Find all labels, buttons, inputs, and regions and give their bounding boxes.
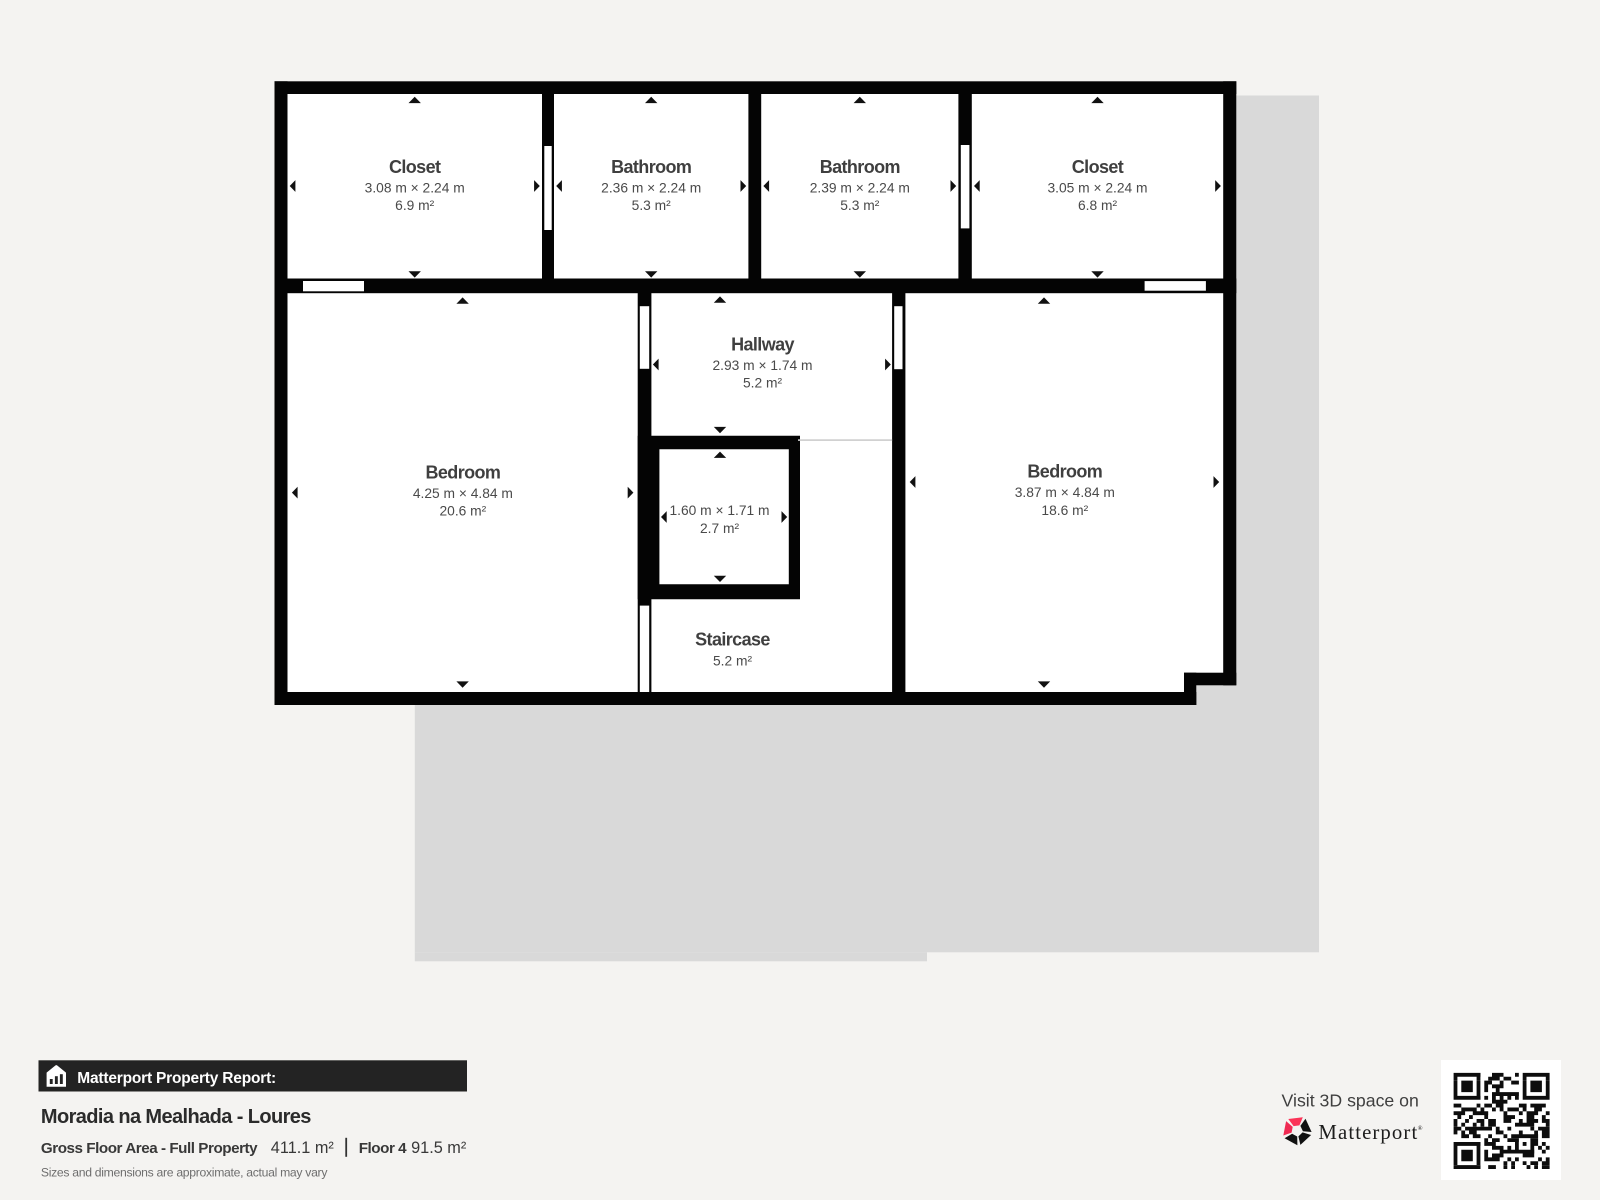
svg-text:91.5 m²: 91.5 m²: [411, 1139, 467, 1157]
svg-text:3.87 m × 4.84 m: 3.87 m × 4.84 m: [1015, 485, 1115, 500]
svg-text:6.8 m²: 6.8 m²: [1078, 198, 1118, 213]
svg-text:Bedroom: Bedroom: [425, 462, 500, 482]
svg-text:Moradia na Mealhada - Loures: Moradia na Mealhada - Loures: [41, 1106, 311, 1128]
svg-text:Bathroom: Bathroom: [611, 157, 691, 177]
svg-text:2.7 m²: 2.7 m²: [700, 521, 740, 536]
svg-text:Sizes and dimensions are appro: Sizes and dimensions are approximate, ac…: [41, 1165, 328, 1179]
svg-text:2.39 m × 2.24 m: 2.39 m × 2.24 m: [810, 180, 910, 195]
svg-text:2.36 m × 2.24 m: 2.36 m × 2.24 m: [601, 180, 701, 195]
svg-text:2.93 m × 1.74 m: 2.93 m × 1.74 m: [712, 358, 812, 373]
svg-text:Closet: Closet: [1072, 157, 1124, 177]
svg-text:Closet: Closet: [389, 157, 441, 177]
svg-text:5.2 m²: 5.2 m²: [743, 376, 783, 391]
svg-text:®: ®: [1418, 1125, 1423, 1132]
svg-text:4.25 m × 4.84 m: 4.25 m × 4.84 m: [413, 486, 513, 501]
svg-text:411.1 m²: 411.1 m²: [271, 1139, 335, 1157]
svg-text:5.3 m²: 5.3 m²: [840, 198, 880, 213]
svg-text:5.3 m²: 5.3 m²: [632, 198, 672, 213]
svg-text:1.60 m × 1.71 m: 1.60 m × 1.71 m: [669, 503, 769, 518]
svg-text:18.6 m²: 18.6 m²: [1041, 503, 1088, 518]
svg-text:Staircase: Staircase: [695, 629, 770, 649]
svg-text:Hallway: Hallway: [731, 334, 794, 354]
svg-text:Matterport Property Report:: Matterport Property Report:: [77, 1070, 276, 1087]
svg-text:Gross Floor Area - Full Proper: Gross Floor Area - Full Property: [41, 1140, 258, 1157]
svg-text:Matterport: Matterport: [1318, 1121, 1418, 1144]
svg-text:20.6 m²: 20.6 m²: [440, 504, 487, 519]
svg-text:Bathroom: Bathroom: [820, 157, 900, 177]
svg-text:6.9 m²: 6.9 m²: [395, 198, 435, 213]
svg-text:3.05 m × 2.24 m: 3.05 m × 2.24 m: [1047, 180, 1147, 195]
svg-text:Floor 4: Floor 4: [359, 1140, 407, 1157]
svg-text:3.08 m × 2.24 m: 3.08 m × 2.24 m: [365, 180, 465, 195]
svg-text:Visit 3D space on: Visit 3D space on: [1282, 1091, 1419, 1111]
svg-text:Bedroom: Bedroom: [1027, 462, 1102, 482]
svg-text:5.2 m²: 5.2 m²: [713, 653, 753, 668]
